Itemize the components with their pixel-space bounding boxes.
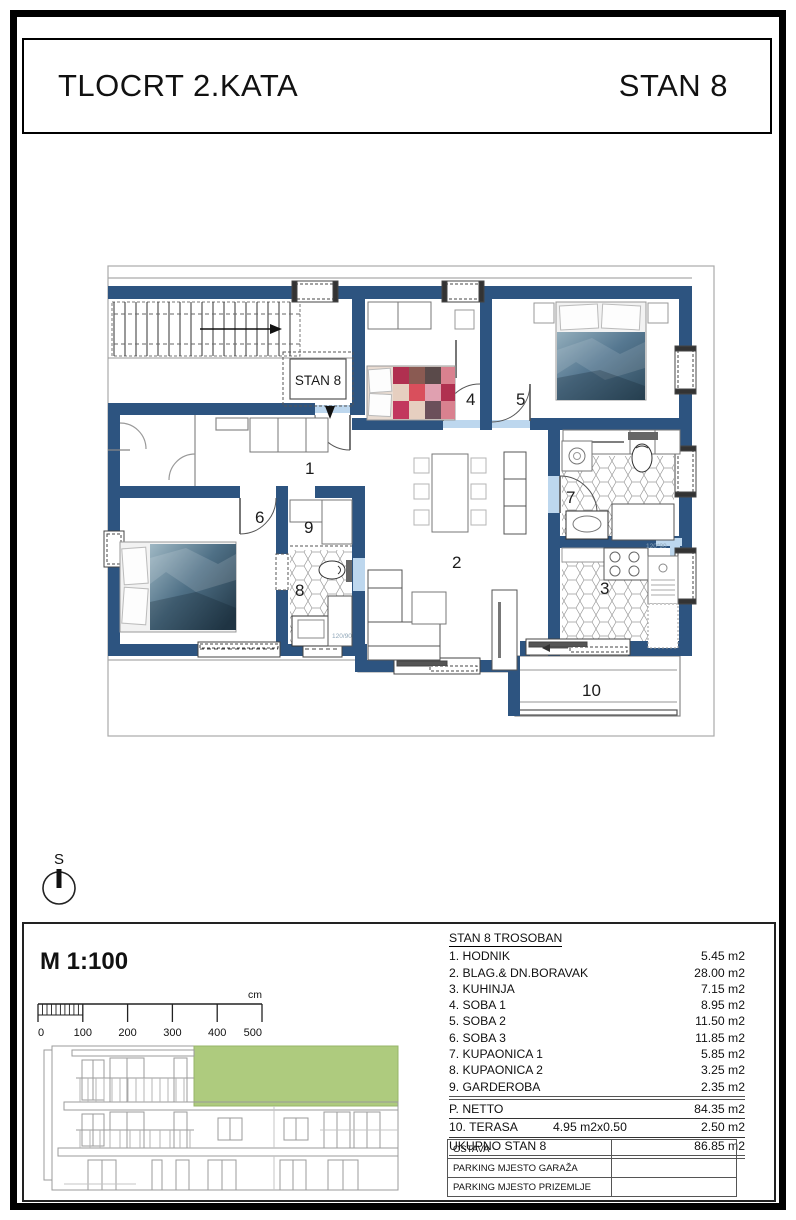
hall-closet [250,418,328,452]
room-label-3: 3 [600,579,609,598]
table-row: 3. KUHINJA7.15 m2 [449,981,745,997]
empty-value-cell [612,1178,736,1196]
room-label-8: 8 [295,581,304,600]
compass-needle-icon [57,869,62,888]
shower2-dim: 120/90 [332,633,352,640]
shower-1 [612,504,674,540]
tall-cabinet [504,452,526,534]
room-label-6: 6 [255,508,264,527]
scale-tick-100: 100 [74,1027,92,1039]
bed-room4 [367,366,455,420]
scale-tick-400: 400 [208,1027,226,1039]
table-row: 4. SOBA 18.95 m2 [449,997,745,1013]
table-row: PARKING MJESTO PRIZEMLJE [448,1178,736,1196]
dining-table [432,454,468,532]
floor-plan-drawing: STAN 8 [100,258,722,744]
toilet-1-icon [632,444,652,472]
toilet-2-icon [319,561,345,579]
parking-table: OSTAVA PARKING MJESTO GARAŽA PARKING MJE… [447,1139,737,1197]
unit-entry-label: STAN 8 [295,373,341,388]
cistern [628,432,658,440]
table-row: 7. KUPAONICA 15.85 m2 [449,1046,745,1062]
bed-room6 [120,542,236,632]
room-label-2: 2 [452,553,461,572]
shower1-dim: 120*90 [646,543,667,550]
room-label-7: 7 [566,488,575,507]
scale-tick-500: 500 [244,1027,262,1039]
area-table: STAN 8 TROSOBAN 1. HODNIK5.45 m2 2. BLAG… [449,930,745,1160]
table-row: 8. KUPAONICA 23.25 m2 [449,1062,745,1078]
legend-panel: M 1:100 cm 0 100 200 300 400 500 [22,922,776,1202]
terasa-calc: 4.95 m2x0.50 [553,1119,627,1135]
room-label-9: 9 [304,518,313,537]
table-row: 2. BLAG.& DN.BORAVAK28.00 m2 [449,965,745,981]
drawing-sheet: TLOCRT 2.KATA STAN 8 [0,0,796,1220]
table-row: PARKING MJESTO GARAŽA [448,1159,736,1178]
stair-direction-arrow [270,324,282,334]
scale-unit: cm [248,989,262,1001]
area-table-header: STAN 8 TROSOBAN [449,930,562,947]
washing-machine-icon [562,441,592,471]
wardrobe-room9 [290,500,352,546]
north-label: S [54,851,64,868]
scale-tick-300: 300 [163,1027,181,1039]
sheet-title: TLOCRT 2.KATA [58,68,298,104]
scale-bar: cm 0 100 200 300 400 500 [36,988,268,1042]
title-block: TLOCRT 2.KATA STAN 8 [22,38,772,134]
table-row: 5. SOBA 211.50 m2 [449,1013,745,1029]
room-label-10: 10 [582,681,601,700]
terasa-row: 10. TERASA4.95 m2x0.502.50 m2 [449,1119,745,1135]
bed-room5 [556,302,646,400]
building-elevation [36,1042,412,1194]
table-row: 1. HODNIK5.45 m2 [449,948,745,964]
unit-highlight [194,1046,398,1106]
empty-value-cell [612,1159,736,1177]
staircase [108,302,352,358]
room-label-5: 5 [516,390,525,409]
sink-1-icon [566,511,608,539]
north-arrow: S [36,850,82,910]
scale-label: M 1:100 [40,948,128,976]
table-row: 9. GARDEROBA2.35 m2 [449,1079,745,1095]
table-divider [449,1096,745,1100]
floor-plan: STAN 8 [100,258,722,744]
scale-tick-200: 200 [118,1027,136,1039]
table-row: 6. SOBA 311.85 m2 [449,1030,745,1046]
tv-wall [492,590,517,670]
living-furniture [368,452,526,670]
room4-furniture [367,302,474,420]
table-row: OSTAVA [448,1140,736,1159]
empty-value-cell [612,1140,736,1158]
scale-tick-0: 0 [38,1027,44,1039]
room-label-1: 1 [305,459,314,478]
neighbor-walls [108,415,248,486]
unit-title: STAN 8 [619,68,728,104]
room-label-4: 4 [466,390,475,409]
coffee-table [412,592,446,624]
stove-icon [604,548,648,580]
netto-row: P. NETTO84.35 m2 [449,1101,745,1117]
